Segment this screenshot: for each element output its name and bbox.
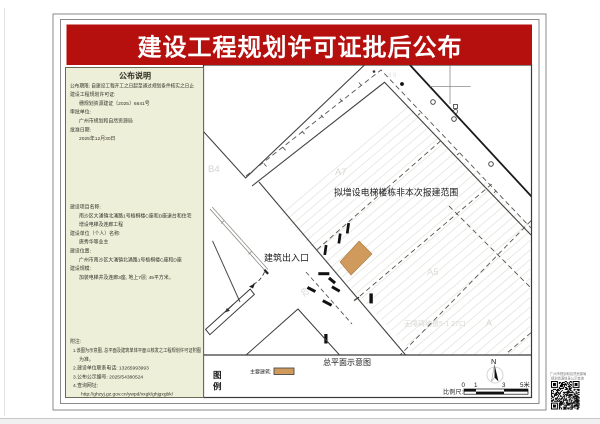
svg-text:总平面示意图: 总平面示意图 [323,357,371,367]
svg-text:2025年12月30日: 2025年12月30日 [79,135,116,142]
svg-text:主要建筑:: 主要建筑: [250,369,271,376]
svg-text:批准日期:: 批准日期: [70,126,91,133]
svg-text:B4: B4 [208,164,220,175]
svg-text:附注:: 附注: [70,338,81,345]
svg-text:图: 图 [213,370,222,380]
svg-text:N: N [491,357,496,366]
svg-text:建设位置:: 建设位置: [70,248,91,255]
svg-text:加装电梯井及连廊3座, 地上7层; 45平方米。: 加装电梯井及连廊3座, 地上7层; 45平方米。 [79,274,174,281]
svg-text:无障碍坡道5-1 27口: 无障碍坡道5-1 27口 [404,319,466,328]
svg-text:拟增设电梯楼栋非本次报建范围: 拟增设电梯楼栋非本次报建范围 [334,187,458,198]
svg-text:广州市规划和自然资源局: 广州市规划和自然资源局 [550,371,586,376]
svg-text:例: 例 [213,382,222,392]
svg-text:建设工程规划许可证批后公布: 建设工程规划许可证批后公布 [138,34,463,62]
svg-text:4.查询网址:: 4.查询网址: [73,382,98,389]
svg-text:增设电梯及连廊工程: 增设电梯及连廊工程 [79,221,123,228]
svg-text:为准。: 为准。 [79,356,94,363]
svg-text:2.建设单位联系电话: 13265993993: 2.建设单位联系电话: 13265993993 [73,365,149,372]
svg-text:1: 1 [474,382,478,389]
svg-text:A5: A5 [427,267,439,278]
svg-text:3.公布公示编号: 2025/54380524: 3.公布公示编号: 2025/54380524 [73,373,143,380]
svg-text:建筑出入口: 建筑出入口 [264,252,309,263]
svg-text:唐秀华等业主: 唐秀华等业主 [79,239,108,246]
svg-text:1.该图为示意图, 总平面及建筑单体平面以核发之工程规划许可: 1.该图为示意图, 总平面及建筑单体平面以核发之工程规划许可证附图 [73,347,201,354]
svg-text:穗规划资源建证〔2025〕6641号: 穗规划资源建证〔2025〕6641号 [79,100,150,107]
svg-text:A: A [486,318,492,328]
svg-text:南沙区大涌镇北涌路1号梧桐楼C座和D座退台和住宅: 南沙区大涌镇北涌路1号梧桐楼C座和D座退台和住宅 [79,212,192,219]
svg-text:公布期限: 自建设工程开工之日起至通过规划条件核实之日止: 公布期限: 自建设工程开工之日起至通过规划条件核实之日止 [70,82,194,89]
svg-text:比例尺:: 比例尺: [443,388,464,396]
svg-text:建设项目名称:: 建设项目名称: [70,204,101,211]
svg-text:8 9: 8 9 [388,73,397,79]
svg-text:广州市规划和自然资源局: 广州市规划和自然资源局 [79,118,133,125]
svg-text:广州市南沙区大涌镇北涌路1号梧桐楼C座和D座: 广州市南沙区大涌镇北涌路1号梧桐楼C座和D座 [79,256,182,263]
svg-text:公布说明: 公布说明 [119,71,151,81]
svg-text:A7: A7 [335,167,347,178]
svg-text:0: 0 [462,382,466,389]
svg-text:建设规模:: 建设规模: [70,265,91,272]
svg-text:建设工程规划许可证:: 建设工程规划许可证: [70,91,115,98]
svg-text:3: 3 [502,382,506,389]
svg-text:http://ghzyj.gz.gov.cn/ywpd/xx: http://ghzyj.gz.gov.cn/ywpd/xxgk/ghjgxgb… [81,391,174,397]
svg-text:建设单位（个人）名称:: 建设单位（个人）名称: [70,230,120,237]
svg-text:5米: 5米 [520,381,530,389]
svg-text:审批单位:: 审批单位: [70,109,91,116]
svg-text:规划资源信息公示查询: 规划资源信息公示查询 [551,376,585,381]
